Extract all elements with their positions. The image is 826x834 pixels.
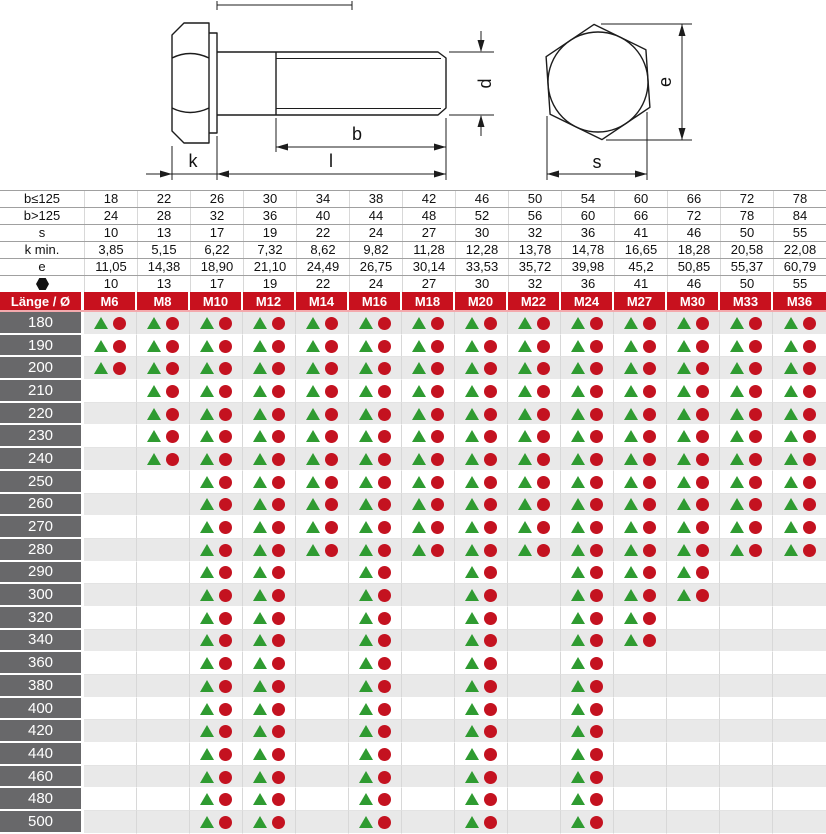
dimension-row: b>1252428323640444852566066727884 xyxy=(0,207,826,224)
availability-cell xyxy=(402,539,455,562)
column-header-m18: M18 xyxy=(402,292,455,310)
dimension-value: 10 xyxy=(84,225,137,241)
dimension-value: 19 xyxy=(243,225,296,241)
availability-cell-empty xyxy=(84,584,137,607)
triangle-marker xyxy=(306,498,320,510)
availability-cell xyxy=(402,516,455,539)
circle-marker xyxy=(484,748,497,761)
availability-cell xyxy=(190,335,243,358)
triangle-marker xyxy=(465,612,479,624)
availability-cell xyxy=(561,743,614,766)
triangle-marker xyxy=(253,521,267,533)
triangle-marker xyxy=(677,340,691,352)
availability-cell xyxy=(614,584,667,607)
triangle-marker xyxy=(465,521,479,533)
length-cell: 460 xyxy=(0,766,84,789)
bolt-catalog-page: k l b d e s b≤12518222630343842465054606… xyxy=(0,0,826,834)
availability-cell xyxy=(508,516,561,539)
availability-cell xyxy=(190,811,243,834)
availability-table-body: 1801902002102202302402502602702802903003… xyxy=(0,312,826,834)
availability-cell-empty xyxy=(84,766,137,789)
availability-cell xyxy=(455,720,508,743)
availability-cell-empty xyxy=(720,788,773,811)
triangle-marker xyxy=(359,453,373,465)
dimension-value: 26,75 xyxy=(349,259,402,275)
triangle-marker xyxy=(677,362,691,374)
triangle-marker xyxy=(359,793,373,805)
triangle-marker xyxy=(465,634,479,646)
circle-marker xyxy=(219,453,232,466)
length-cell: 380 xyxy=(0,675,84,698)
triangle-marker xyxy=(677,408,691,420)
length-cell: 210 xyxy=(0,380,84,403)
dimension-value: 28 xyxy=(137,208,190,224)
triangle-marker xyxy=(359,476,373,488)
side-view-dimensions: k l b d xyxy=(146,31,495,180)
availability-cell xyxy=(243,698,296,721)
availability-cell xyxy=(190,494,243,517)
dimension-row: 1013171922242730323641465055 xyxy=(0,275,826,292)
availability-cell xyxy=(773,448,826,471)
circle-marker xyxy=(590,521,603,534)
dimension-value: 60 xyxy=(561,208,614,224)
length-cell: 280 xyxy=(0,539,84,562)
availability-cell-empty xyxy=(84,494,137,517)
length-cell: 200 xyxy=(0,357,84,380)
triangle-marker xyxy=(677,476,691,488)
availability-cell xyxy=(773,539,826,562)
availability-cell-empty xyxy=(137,494,190,517)
availability-cell xyxy=(508,448,561,471)
availability-cell-empty xyxy=(137,675,190,698)
availability-cell xyxy=(561,788,614,811)
availability-cell xyxy=(455,494,508,517)
length-cell: 480 xyxy=(0,788,84,811)
triangle-marker xyxy=(518,362,532,374)
triangle-marker xyxy=(624,430,638,442)
availability-cell xyxy=(402,357,455,380)
availability-cell-empty xyxy=(296,720,349,743)
dimension-value: 22 xyxy=(296,276,349,292)
triangle-marker xyxy=(94,362,108,374)
column-header-m12: M12 xyxy=(243,292,296,310)
availability-cell xyxy=(720,494,773,517)
triangle-marker xyxy=(784,408,798,420)
availability-cell-empty xyxy=(84,471,137,494)
circle-marker xyxy=(219,680,232,693)
triangle-marker xyxy=(253,589,267,601)
dimension-value: 9,82 xyxy=(349,242,402,258)
availability-cell xyxy=(720,403,773,426)
availability-cell xyxy=(455,357,508,380)
triangle-marker xyxy=(200,748,214,760)
circle-marker xyxy=(378,612,391,625)
availability-cell xyxy=(561,425,614,448)
column-header-m6: M6 xyxy=(84,292,137,310)
triangle-marker xyxy=(784,317,798,329)
availability-cell xyxy=(243,494,296,517)
circle-marker xyxy=(590,793,603,806)
column-header-m16: M16 xyxy=(349,292,402,310)
triangle-marker xyxy=(359,566,373,578)
circle-marker xyxy=(166,340,179,353)
availability-cell xyxy=(243,539,296,562)
triangle-marker xyxy=(253,408,267,420)
availability-cell xyxy=(455,403,508,426)
column-header-m22: M22 xyxy=(508,292,561,310)
availability-cell xyxy=(296,380,349,403)
triangle-marker xyxy=(359,680,373,692)
circle-marker xyxy=(431,476,444,489)
availability-cell xyxy=(243,652,296,675)
availability-cell-empty xyxy=(84,516,137,539)
availability-cell xyxy=(455,448,508,471)
table-row: 240 xyxy=(0,448,826,471)
availability-cell xyxy=(614,562,667,585)
triangle-marker xyxy=(200,703,214,715)
table-row: 260 xyxy=(0,494,826,517)
availability-cell-empty xyxy=(137,743,190,766)
availability-cell xyxy=(84,312,137,335)
triangle-marker xyxy=(730,498,744,510)
dimension-row-label: s xyxy=(0,225,84,241)
length-cell: 420 xyxy=(0,720,84,743)
availability-cell xyxy=(349,788,402,811)
dimension-value: 11,28 xyxy=(402,242,455,258)
dimension-row: e11,0514,3818,9021,1024,4926,7530,1433,5… xyxy=(0,258,826,275)
availability-table: Länge / ØM6M8M10M12M14M16M18M20M22M24M27… xyxy=(0,292,826,834)
availability-cell xyxy=(243,584,296,607)
availability-cell xyxy=(561,766,614,789)
triangle-marker xyxy=(571,408,585,420)
triangle-marker xyxy=(624,317,638,329)
dimension-value: 41 xyxy=(614,276,667,292)
dimension-value: 30 xyxy=(455,225,508,241)
circle-marker xyxy=(378,634,391,647)
availability-cell xyxy=(561,494,614,517)
triangle-marker xyxy=(465,703,479,715)
triangle-marker xyxy=(306,340,320,352)
circle-marker xyxy=(272,385,285,398)
table-row: 280 xyxy=(0,539,826,562)
availability-cell xyxy=(243,312,296,335)
circle-marker xyxy=(696,430,709,443)
triangle-marker xyxy=(624,362,638,374)
triangle-marker xyxy=(518,521,532,533)
dimension-value: 33,53 xyxy=(455,259,508,275)
triangle-marker xyxy=(306,385,320,397)
triangle-marker xyxy=(412,544,426,556)
dimension-value: 35,72 xyxy=(508,259,561,275)
availability-cell xyxy=(402,425,455,448)
triangle-marker xyxy=(306,362,320,374)
table-row: 480 xyxy=(0,788,826,811)
circle-marker xyxy=(537,385,550,398)
availability-cell-empty xyxy=(84,380,137,403)
availability-cell-empty xyxy=(137,516,190,539)
availability-cell-empty xyxy=(508,766,561,789)
availability-cell xyxy=(561,357,614,380)
circle-marker xyxy=(325,476,338,489)
dimension-value: 12,28 xyxy=(455,242,508,258)
table-row: 220 xyxy=(0,403,826,426)
triangle-marker xyxy=(465,657,479,669)
circle-marker xyxy=(643,385,656,398)
availability-cell-empty xyxy=(296,630,349,653)
dimension-value: 72 xyxy=(667,208,720,224)
availability-cell xyxy=(349,471,402,494)
triangle-marker xyxy=(624,498,638,510)
availability-cell xyxy=(190,698,243,721)
availability-cell xyxy=(508,335,561,358)
triangle-marker xyxy=(677,385,691,397)
availability-cell xyxy=(190,403,243,426)
circle-marker xyxy=(803,476,816,489)
availability-cell-empty xyxy=(773,562,826,585)
triangle-marker xyxy=(200,408,214,420)
availability-cell xyxy=(190,766,243,789)
triangle-marker xyxy=(571,589,585,601)
availability-cell xyxy=(349,494,402,517)
circle-marker xyxy=(325,385,338,398)
dimension-value: 14,38 xyxy=(137,259,190,275)
availability-table-header: Länge / ØM6M8M10M12M14M16M18M20M22M24M27… xyxy=(0,292,826,312)
triangle-marker xyxy=(677,317,691,329)
availability-cell-empty xyxy=(84,425,137,448)
triangle-marker xyxy=(465,725,479,737)
availability-cell xyxy=(614,516,667,539)
circle-marker xyxy=(272,566,285,579)
availability-cell xyxy=(455,788,508,811)
triangle-marker xyxy=(518,498,532,510)
availability-cell-empty xyxy=(84,720,137,743)
availability-cell xyxy=(614,357,667,380)
table-row: 500 xyxy=(0,811,826,834)
top-view-dimensions: e s xyxy=(547,24,692,180)
triangle-marker xyxy=(359,657,373,669)
dimension-value: 30 xyxy=(455,276,508,292)
dimension-value: 60 xyxy=(614,191,667,207)
availability-cell-empty xyxy=(508,743,561,766)
triangle-marker xyxy=(359,408,373,420)
circle-marker xyxy=(590,566,603,579)
triangle-marker xyxy=(784,544,798,556)
dimension-value: 17 xyxy=(190,276,243,292)
availability-cell xyxy=(243,380,296,403)
availability-cell xyxy=(349,698,402,721)
dimension-value: 55,37 xyxy=(720,259,773,275)
availability-cell xyxy=(667,516,720,539)
availability-cell xyxy=(667,403,720,426)
column-header-m8: M8 xyxy=(137,292,190,310)
triangle-marker xyxy=(518,317,532,329)
availability-cell xyxy=(349,448,402,471)
dimension-value: 60,79 xyxy=(773,259,826,275)
triangle-marker xyxy=(571,430,585,442)
circle-marker xyxy=(590,317,603,330)
triangle-marker xyxy=(412,362,426,374)
triangle-marker xyxy=(571,566,585,578)
table-row: 420 xyxy=(0,720,826,743)
triangle-marker xyxy=(677,430,691,442)
availability-cell xyxy=(190,743,243,766)
availability-cell xyxy=(561,720,614,743)
availability-cell xyxy=(720,335,773,358)
availability-cell-empty xyxy=(84,403,137,426)
circle-marker xyxy=(643,521,656,534)
availability-cell xyxy=(349,403,402,426)
triangle-marker xyxy=(253,385,267,397)
length-cell: 220 xyxy=(0,403,84,426)
dimension-row-label: b≤125 xyxy=(0,191,84,207)
availability-cell xyxy=(243,630,296,653)
availability-cell xyxy=(243,425,296,448)
triangle-marker xyxy=(200,317,214,329)
availability-cell xyxy=(561,675,614,698)
circle-marker xyxy=(590,748,603,761)
availability-cell xyxy=(561,630,614,653)
circle-marker xyxy=(749,317,762,330)
availability-cell xyxy=(614,380,667,403)
availability-cell xyxy=(349,743,402,766)
circle-marker xyxy=(590,498,603,511)
triangle-marker xyxy=(465,362,479,374)
availability-cell xyxy=(349,539,402,562)
triangle-marker xyxy=(306,544,320,556)
availability-cell xyxy=(190,788,243,811)
circle-marker xyxy=(590,340,603,353)
availability-cell-empty xyxy=(720,607,773,630)
availability-cell xyxy=(667,335,720,358)
availability-cell-empty xyxy=(84,675,137,698)
circle-marker xyxy=(749,498,762,511)
circle-marker xyxy=(484,725,497,738)
triangle-marker xyxy=(465,771,479,783)
circle-marker xyxy=(643,408,656,421)
circle-marker xyxy=(749,453,762,466)
circle-marker xyxy=(590,634,603,647)
availability-cell-empty xyxy=(508,675,561,698)
circle-marker xyxy=(378,748,391,761)
availability-cell xyxy=(349,584,402,607)
availability-cell-empty xyxy=(667,652,720,675)
circle-marker xyxy=(272,521,285,534)
length-cell: 400 xyxy=(0,698,84,721)
circle-marker xyxy=(166,430,179,443)
column-header-m36: M36 xyxy=(773,292,826,310)
length-cell: 360 xyxy=(0,652,84,675)
dimension-value: 6,22 xyxy=(190,242,243,258)
circle-marker xyxy=(590,680,603,693)
circle-marker xyxy=(272,680,285,693)
length-cell: 250 xyxy=(0,471,84,494)
availability-cell xyxy=(455,562,508,585)
availability-cell xyxy=(667,562,720,585)
dimension-value: 46 xyxy=(455,191,508,207)
column-header-m20: M20 xyxy=(455,292,508,310)
availability-cell xyxy=(296,516,349,539)
circle-marker xyxy=(378,385,391,398)
availability-cell xyxy=(296,357,349,380)
dimension-value: 44 xyxy=(349,208,402,224)
availability-cell xyxy=(455,539,508,562)
availability-cell xyxy=(402,312,455,335)
triangle-marker xyxy=(518,453,532,465)
column-header-m27: M27 xyxy=(614,292,667,310)
availability-cell-empty xyxy=(720,743,773,766)
availability-cell xyxy=(614,403,667,426)
circle-marker xyxy=(219,725,232,738)
availability-cell xyxy=(667,584,720,607)
circle-marker xyxy=(272,544,285,557)
dimension-value: 42 xyxy=(402,191,455,207)
circle-marker xyxy=(431,453,444,466)
availability-cell-empty xyxy=(614,675,667,698)
dimension-value: 50,85 xyxy=(667,259,720,275)
availability-cell-empty xyxy=(773,652,826,675)
circle-marker xyxy=(537,408,550,421)
dimension-value: 17 xyxy=(190,225,243,241)
triangle-marker xyxy=(412,340,426,352)
triangle-marker xyxy=(784,362,798,374)
availability-cell xyxy=(773,425,826,448)
triangle-marker xyxy=(306,476,320,488)
circle-marker xyxy=(696,521,709,534)
circle-marker xyxy=(166,453,179,466)
circle-marker xyxy=(219,793,232,806)
dimension-value: 8,62 xyxy=(296,242,349,258)
availability-cell xyxy=(614,448,667,471)
triangle-marker xyxy=(94,317,108,329)
triangle-marker xyxy=(200,816,214,828)
length-cell: 320 xyxy=(0,607,84,630)
availability-cell xyxy=(614,539,667,562)
triangle-marker xyxy=(624,385,638,397)
availability-cell xyxy=(773,335,826,358)
availability-cell xyxy=(349,720,402,743)
availability-cell xyxy=(720,448,773,471)
circle-marker xyxy=(484,340,497,353)
dimension-value: 32 xyxy=(190,208,243,224)
triangle-marker xyxy=(465,453,479,465)
dimension-value: 13,78 xyxy=(508,242,561,258)
triangle-marker xyxy=(359,521,373,533)
triangle-marker xyxy=(359,771,373,783)
availability-cell xyxy=(561,539,614,562)
availability-cell-empty xyxy=(614,788,667,811)
availability-cell xyxy=(296,335,349,358)
availability-cell xyxy=(402,494,455,517)
triangle-marker xyxy=(624,453,638,465)
availability-cell-empty xyxy=(296,811,349,834)
triangle-marker xyxy=(200,453,214,465)
dimension-label-b: b xyxy=(352,124,362,144)
dimension-value: 66 xyxy=(614,208,667,224)
availability-cell xyxy=(243,720,296,743)
length-cell: 270 xyxy=(0,516,84,539)
triangle-marker xyxy=(624,634,638,646)
circle-marker xyxy=(272,816,285,829)
triangle-marker xyxy=(571,453,585,465)
dimension-value: 46 xyxy=(667,276,720,292)
circle-marker xyxy=(378,589,391,602)
triangle-marker xyxy=(253,703,267,715)
availability-cell xyxy=(455,425,508,448)
availability-cell xyxy=(402,335,455,358)
triangle-marker xyxy=(147,340,161,352)
circle-marker xyxy=(272,430,285,443)
dimension-label-k: k xyxy=(189,151,199,171)
